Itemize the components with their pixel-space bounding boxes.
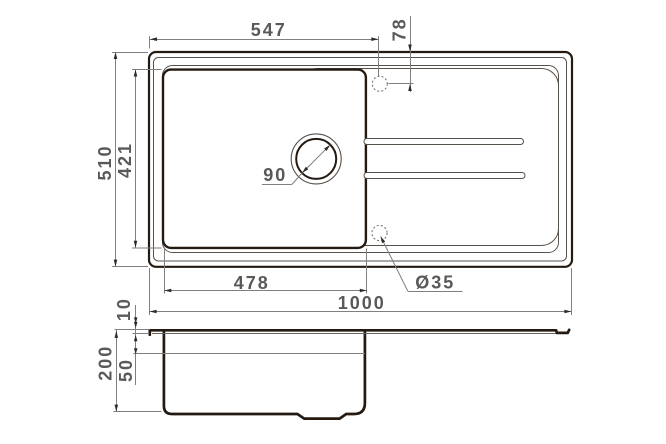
svg-text:421: 421	[115, 142, 135, 178]
svg-text:Ø35: Ø35	[415, 273, 455, 293]
svg-text:478: 478	[234, 273, 270, 293]
svg-text:10: 10	[114, 297, 134, 321]
svg-text:90: 90	[263, 165, 287, 185]
svg-text:510: 510	[95, 144, 115, 180]
svg-text:78: 78	[389, 17, 409, 41]
svg-text:547: 547	[251, 20, 287, 40]
svg-text:200: 200	[96, 345, 116, 381]
svg-text:1000: 1000	[338, 293, 386, 313]
svg-text:50: 50	[116, 358, 136, 382]
